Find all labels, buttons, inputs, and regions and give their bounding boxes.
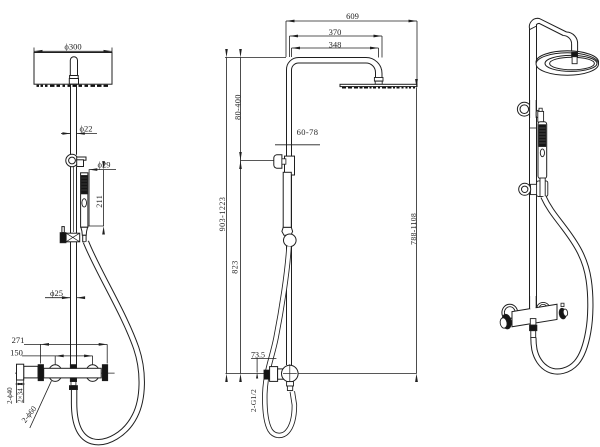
svg-text:609: 609: [346, 11, 359, 21]
svg-text:80-400: 80-400: [233, 94, 242, 120]
svg-text:903-1223: 903-1223: [218, 197, 227, 232]
svg-text:2-G1/2: 2-G1/2: [249, 389, 258, 412]
svg-text:370: 370: [329, 27, 342, 37]
svg-text:2×34: 2×34: [16, 388, 24, 403]
svg-text:2-ϕ40: 2-ϕ40: [6, 387, 14, 404]
svg-text:60-78: 60-78: [297, 127, 319, 137]
svg-text:348: 348: [329, 39, 342, 49]
svg-text:823: 823: [231, 260, 240, 274]
svg-text:ϕ22: ϕ22: [80, 124, 93, 134]
svg-text:73.5: 73.5: [251, 350, 265, 359]
svg-text:271: 271: [12, 335, 25, 345]
svg-text:ϕ300: ϕ300: [64, 41, 81, 51]
svg-text:ϕ25: ϕ25: [50, 288, 63, 298]
svg-text:150: 150: [10, 348, 23, 358]
svg-text:211: 211: [95, 195, 104, 208]
svg-text:788-1108: 788-1108: [409, 213, 418, 245]
